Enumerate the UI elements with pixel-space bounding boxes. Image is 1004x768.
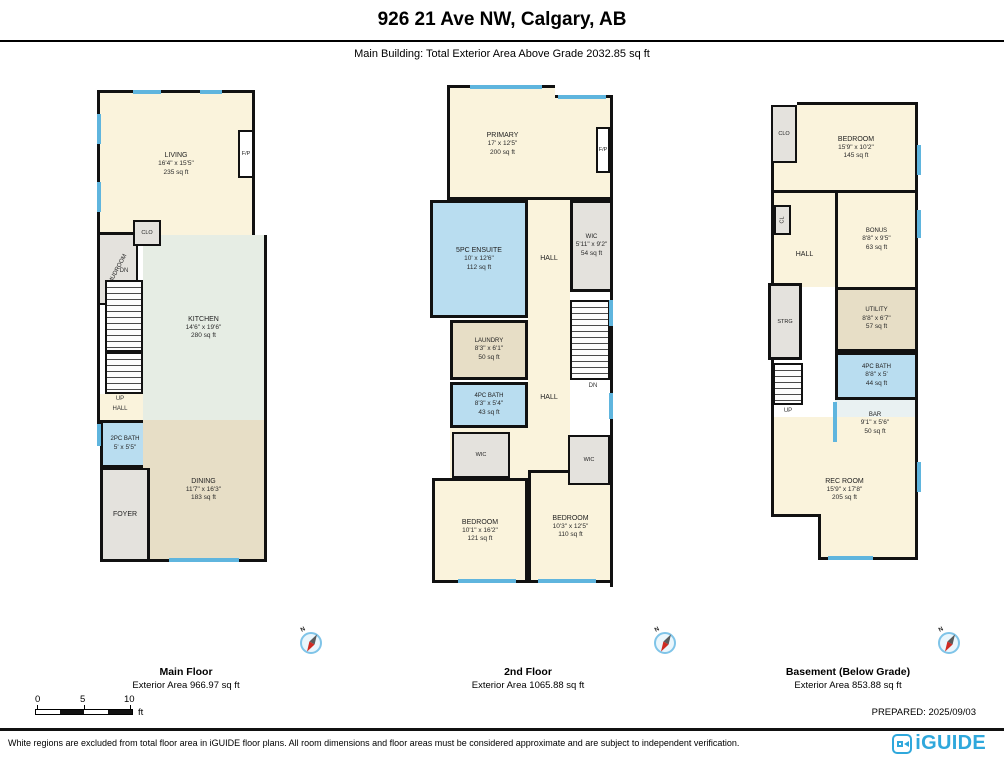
stairs-up (105, 352, 143, 394)
window (200, 90, 222, 94)
room-name: REC ROOM (825, 477, 864, 486)
room-area: 235 sq ft (158, 169, 194, 177)
room-area: 200 sq ft (487, 149, 519, 157)
room-name: LIVING (158, 151, 194, 160)
window (538, 579, 596, 583)
window (97, 182, 101, 212)
room-area: 50 sq ft (861, 428, 889, 436)
room-bedroom: BEDROOM15'9" x 10'2"145 sq ft (797, 102, 918, 193)
room-dims: 14'6" x 19'6" (186, 324, 222, 332)
scale-bar: 0 5 10 ft (35, 694, 165, 724)
room-name: UTILITY (862, 307, 890, 315)
closet-label: CL (780, 216, 786, 223)
room-dims: 8'8" x 6'7" (862, 315, 890, 323)
window (133, 90, 161, 94)
room-area: 145 sq ft (838, 152, 874, 160)
room-name: WIC (576, 234, 608, 242)
room-name: BEDROOM (552, 514, 588, 523)
room-area: 112 sq ft (456, 264, 502, 272)
room-dims: 15'9" x 10'2" (838, 144, 874, 152)
iguide-logo-text: iGUIDE (915, 732, 986, 755)
room-rec: REC ROOM15'9" x 17'8"205 sq ft (771, 417, 918, 517)
floor-plan-page: 926 21 Ave NW, Calgary, AB Main Building… (0, 0, 1004, 768)
stairs-up (773, 363, 803, 405)
hall-label: HALL (796, 250, 814, 259)
room-bedroom-left: BEDROOM10'1" x 16'2"121 sq ft (432, 478, 528, 583)
room-area: 54 sq ft (576, 250, 608, 258)
scale-bar-segments (35, 709, 133, 715)
room-area: 50 sq ft (475, 354, 504, 362)
closet: CLO (771, 105, 797, 163)
scale-tick-10: 10 (124, 694, 135, 705)
room-wic-left: WIC (452, 432, 510, 478)
stairs-up-label: UP (101, 396, 139, 402)
wic-label: WIC (476, 452, 487, 458)
closet: CLO (133, 220, 161, 246)
bedroom-alcove (771, 163, 797, 193)
room-dims: 16'4" x 15'5" (158, 160, 194, 168)
room-name: 4PC BATH (862, 364, 891, 372)
stairs-down (105, 280, 143, 352)
hall-label: HALL (101, 406, 139, 412)
room-dims: 17' x 12'5" (487, 140, 519, 148)
compass-icon: N (936, 630, 962, 656)
basement-plan: CLO BEDROOM15'9" x 10'2"145 sq ft CL HAL… (763, 102, 921, 560)
room-name: PRIMARY (487, 131, 519, 140)
room-name: LAUNDRY (475, 338, 504, 346)
floor-area: Exterior Area 1065.88 sq ft (428, 680, 628, 691)
scale-unit: ft (138, 707, 143, 718)
closet: CL (774, 205, 791, 235)
floor-label-main: Main Floor Exterior Area 966.97 sq ft (86, 666, 286, 691)
window (917, 210, 921, 238)
room-name: FOYER (113, 510, 137, 519)
room-bedroom-right: BEDROOM10'3" x 12'5"110 sq ft (528, 470, 613, 583)
room-dims: 8'8" x 5' (862, 371, 891, 379)
room-area: 205 sq ft (825, 494, 864, 502)
room-primary: PRIMARY17' x 12'5"200 sq ft (447, 85, 555, 200)
hall-label: HALL (540, 393, 558, 402)
iguide-logo-icon (892, 734, 912, 754)
wall-segment (97, 232, 100, 424)
room-4pc-bath: 4PC BATH8'8" x 5'44 sq ft (835, 352, 918, 400)
floor-name: Basement (Below Grade) (748, 666, 948, 678)
footer-divider (0, 728, 1004, 731)
window (609, 300, 613, 326)
stairs-up-label: UP (773, 408, 803, 414)
window (609, 393, 613, 419)
room-storage: STRG (768, 283, 802, 360)
room-area: 57 sq ft (862, 323, 890, 331)
floor-label-second: 2nd Floor Exterior Area 1065.88 sq ft (428, 666, 628, 691)
window (917, 462, 921, 492)
room-5pc-ensuite: 5PC ENSUITE10' x 12'6"112 sq ft (430, 200, 528, 318)
room-kitchen: KITCHEN14'6" x 19'6"280 sq ft (143, 235, 267, 420)
wic-label: WIC (584, 457, 595, 463)
room-wic-right: WIC (568, 435, 610, 485)
fireplace-label: F/P (242, 151, 251, 157)
room-dims: 15'9" x 17'8" (825, 486, 864, 494)
wall-segment (771, 190, 797, 193)
room-living: LIVING16'4" x 15'5"235 sq ft (97, 90, 255, 235)
floor-area: Exterior Area 966.97 sq ft (86, 680, 286, 691)
room-area: 121 sq ft (462, 535, 498, 543)
room-wic-upper: WIC5'11" x 9'2"54 sq ft (570, 200, 613, 292)
room-dims: 9'1" x 5'6" (861, 419, 889, 427)
window (97, 114, 101, 144)
room-area: 63 sq ft (862, 244, 890, 252)
room-utility: UTILITY8'8" x 6'7"57 sq ft (835, 287, 918, 352)
room-name: BEDROOM (462, 518, 498, 527)
room-dims: 10'3" x 12'5" (552, 523, 588, 531)
room-area: 44 sq ft (862, 380, 891, 388)
room-dims: 8'3" x 5'4" (475, 400, 504, 408)
room-dims: 10'1" x 16'2" (462, 527, 498, 535)
stairs-down (570, 300, 610, 380)
closet-label: CLO (778, 131, 789, 137)
header-divider (0, 40, 1004, 42)
hall-upper: HALL (528, 200, 570, 318)
window (458, 579, 516, 583)
floor-label-basement: Basement (Below Grade) Exterior Area 853… (748, 666, 948, 691)
iguide-logo: iGUIDE (892, 732, 986, 755)
floor-area: Exterior Area 853.88 sq ft (748, 680, 948, 691)
window (470, 85, 542, 89)
prepared-date: PREPARED: 2025/09/03 (872, 707, 976, 718)
room-dims: 10' x 12'6" (456, 255, 502, 263)
disclaimer-text: White regions are excluded from total fl… (8, 738, 868, 748)
window (558, 95, 606, 99)
room-dims: 5' x 5'5" (111, 444, 140, 452)
wall-segment (771, 514, 821, 517)
stairs-dn-label: DN (105, 268, 143, 274)
room-area: 110 sq ft (552, 531, 588, 539)
fireplace: F/P (238, 130, 254, 178)
wall-segment (610, 197, 613, 587)
room-name: BEDROOM (838, 135, 874, 144)
compass-icon: N (298, 630, 324, 656)
room-name: KITCHEN (186, 315, 222, 324)
room-name: 5PC ENSUITE (456, 246, 502, 255)
room-name: BAR (861, 412, 889, 420)
window (917, 145, 921, 175)
room-name: 4PC BATH (475, 393, 504, 401)
room-area: 280 sq ft (186, 332, 222, 340)
scale-tick-5: 5 (80, 694, 85, 705)
floor-name: 2nd Floor (428, 666, 628, 678)
room-area: 183 sq ft (186, 494, 221, 502)
room-dims: 8'3" x 6'1" (475, 345, 504, 353)
room-laundry: LAUNDRY8'3" x 6'1"50 sq ft (450, 320, 528, 380)
room-name: BONUS (862, 228, 890, 236)
hall-label: HALL (540, 254, 558, 263)
room-dining: DINING11'7" x 16'3"183 sq ft (143, 420, 267, 562)
page-subtitle: Main Building: Total Exterior Area Above… (0, 48, 1004, 60)
window (97, 424, 101, 446)
room-4pc-bath: 4PC BATH8'3" x 5'4"43 sq ft (450, 382, 528, 428)
scale-tick-0: 0 (35, 694, 40, 705)
room-foyer: FOYER (100, 468, 150, 562)
room-name: DINING (186, 477, 221, 486)
storage-label: STRG (777, 319, 792, 325)
room-dims: 8'8" x 9'5" (862, 235, 890, 243)
main-floor-plan: LIVING16'4" x 15'5"235 sq ft F/P CLO MUD… (97, 90, 270, 565)
room-bonus: BONUS8'8" x 9'5"63 sq ft (835, 193, 918, 287)
room-name: 2PC BATH (111, 436, 140, 444)
fireplace-label: F/P (599, 147, 608, 153)
closet-label: CLO (141, 230, 152, 236)
room-area: 43 sq ft (475, 409, 504, 417)
compass-icon: N (652, 630, 678, 656)
room-dims: 5'11" x 9'2" (576, 241, 608, 249)
window (169, 558, 239, 562)
second-floor-plan: PRIMARY17' x 12'5"200 sq ft F/P 5PC ENSU… (430, 85, 618, 585)
page-title: 926 21 Ave NW, Calgary, AB (0, 9, 1004, 31)
room-rec-lower (818, 517, 918, 560)
hall-lower: HALL (528, 318, 570, 478)
floor-name: Main Floor (86, 666, 286, 678)
window (828, 556, 873, 560)
stairs-dn-label: DN (578, 383, 608, 389)
room-dims: 11'7" x 16'3" (186, 486, 221, 494)
window (833, 402, 837, 442)
fireplace: F/P (596, 127, 610, 173)
wall-segment (447, 197, 613, 200)
